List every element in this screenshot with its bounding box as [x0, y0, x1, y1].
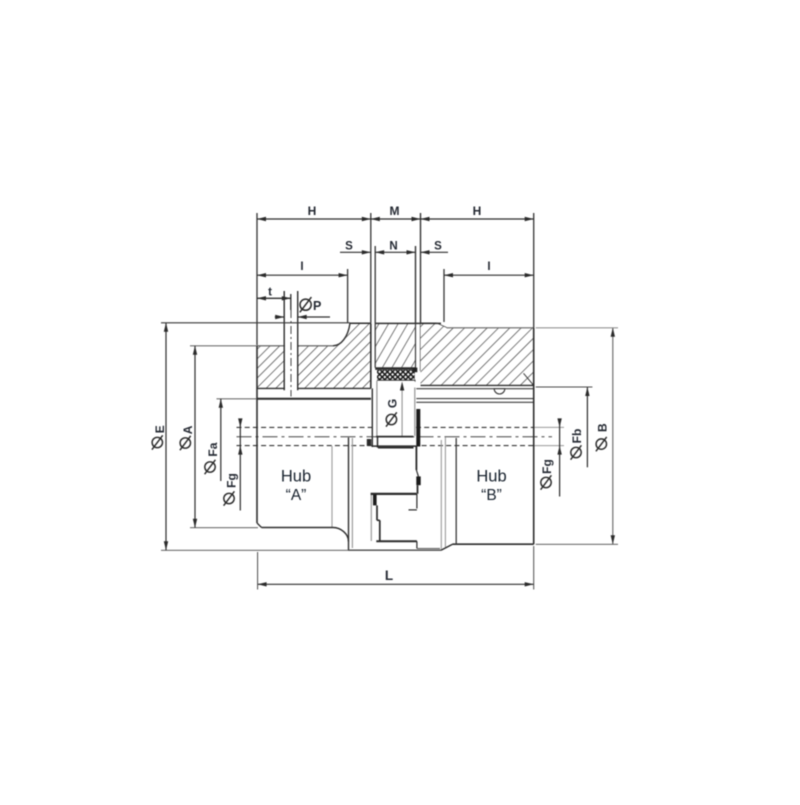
svg-text:H: H [308, 204, 317, 218]
svg-text:Fg: Fg [540, 459, 554, 474]
svg-text:M: M [390, 204, 400, 218]
svg-text:G: G [385, 399, 399, 408]
svg-text:t: t [268, 287, 272, 299]
svg-text:S: S [434, 241, 442, 253]
svg-text:P: P [313, 299, 321, 313]
svg-text:L: L [385, 568, 393, 583]
svg-text:“A”: “A” [286, 487, 307, 504]
svg-text:I: I [300, 261, 303, 273]
svg-text:A: A [181, 425, 195, 434]
svg-text:N: N [389, 241, 397, 253]
svg-text:“B”: “B” [481, 487, 502, 504]
svg-text:I: I [487, 261, 490, 273]
svg-text:H: H [473, 204, 482, 218]
svg-text:Fg: Fg [225, 473, 239, 488]
svg-text:B: B [595, 423, 609, 432]
svg-text:S: S [345, 241, 353, 253]
svg-text:Hub: Hub [281, 468, 311, 486]
svg-text:Fa: Fa [206, 442, 220, 456]
svg-text:E: E [153, 425, 167, 433]
svg-text:Hub: Hub [476, 468, 506, 486]
svg-text:Fb: Fb [570, 429, 584, 444]
